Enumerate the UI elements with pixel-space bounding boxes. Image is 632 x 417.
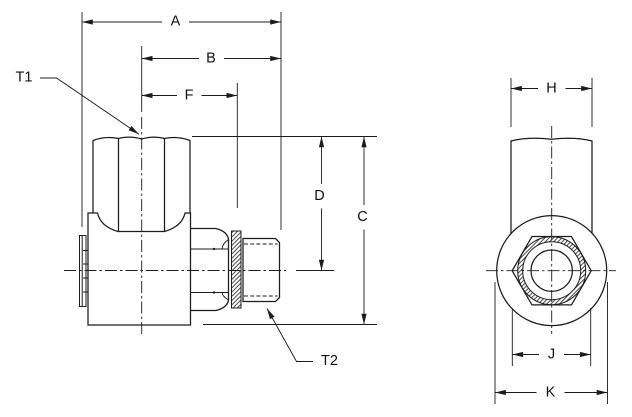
- side-view: [64, 117, 334, 334]
- technical-drawing-canvas: A B F D C T1 T2: [0, 0, 632, 417]
- nut-facet-point: [213, 248, 215, 250]
- left-end-cap: [80, 236, 89, 307]
- dim-label-f: F: [185, 88, 194, 104]
- drawing-page: A B F D C T1 T2: [0, 0, 632, 417]
- thread-outline: [243, 239, 280, 302]
- lock-washer-hatch: [232, 231, 242, 308]
- cap-outline: [80, 236, 87, 307]
- male-thread-end: [243, 239, 280, 302]
- dim-label-h: H: [546, 81, 556, 97]
- port-label-t2: T2: [321, 353, 338, 369]
- dim-label-a: A: [171, 14, 181, 30]
- nut-chamfer-arc: [222, 293, 229, 301]
- body-outline: [88, 213, 191, 325]
- port-label-t1: T1: [16, 70, 33, 86]
- leader-t2: [267, 309, 313, 362]
- leader-t1: [40, 78, 139, 134]
- nut-chamfer-arc: [222, 240, 229, 250]
- nut-outline: [191, 229, 229, 311]
- dim-label-k: K: [546, 385, 556, 401]
- end-view: [486, 126, 616, 334]
- dim-label-d: D: [314, 188, 324, 204]
- nut-facet-point: [213, 291, 215, 293]
- dim-label-c: C: [357, 209, 367, 225]
- dim-label-b: B: [206, 51, 216, 67]
- side-view-dimensions: A B F D C T1 T2: [16, 12, 377, 369]
- hex-nut-side: [191, 229, 229, 311]
- dim-label-j: J: [548, 347, 555, 363]
